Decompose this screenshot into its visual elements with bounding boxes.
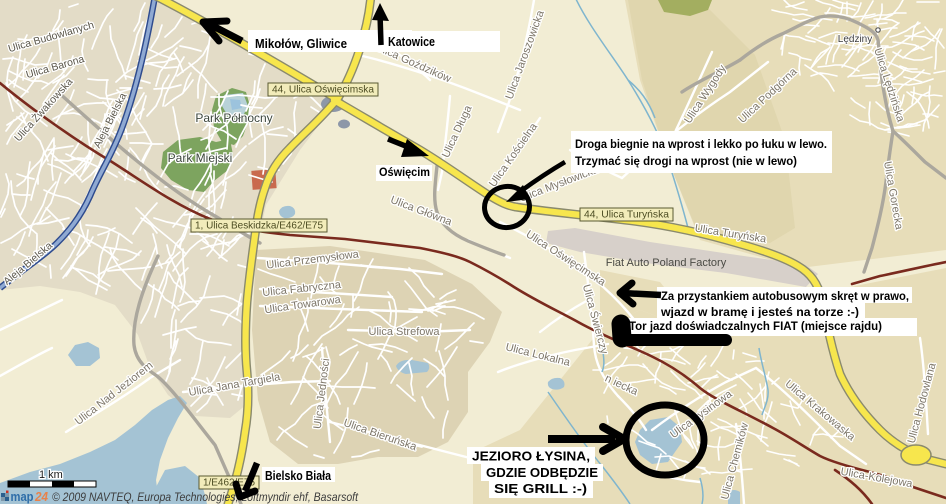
svg-text:Katowice: Katowice bbox=[388, 35, 435, 49]
svg-text:Tor jazd doświadczalnych FIAT: Tor jazd doświadczalnych FIAT (miejsce r… bbox=[629, 319, 882, 333]
svg-text:Droga biegnie na wprost i lekk: Droga biegnie na wprost i lekko po łuku … bbox=[575, 137, 827, 151]
svg-text:wjazd w bramę i jesteś na torz: wjazd w bramę i jesteś na torze :-) bbox=[660, 305, 859, 319]
svg-text:Mikołów, Gliwice: Mikołów, Gliwice bbox=[255, 37, 347, 51]
svg-text:Park Północny: Park Północny bbox=[195, 111, 272, 125]
svg-text:SIĘ GRILL :-): SIĘ GRILL :-) bbox=[494, 482, 587, 496]
svg-text:map: map bbox=[11, 490, 34, 504]
svg-text:1, Ulica Beskidzka/E462/E75: 1, Ulica Beskidzka/E462/E75 bbox=[195, 220, 323, 232]
svg-text:Lędziny: Lędziny bbox=[838, 34, 872, 45]
svg-text:24: 24 bbox=[34, 490, 48, 504]
svg-text:Za przystankiem autobusowym sk: Za przystankiem autobusowym skręt w praw… bbox=[661, 289, 909, 303]
svg-text:Fiat Auto Poland Factory: Fiat Auto Poland Factory bbox=[606, 257, 727, 269]
svg-text:Park Miejski: Park Miejski bbox=[168, 151, 233, 165]
svg-text:JEZIORO ŁYSINA,: JEZIORO ŁYSINA, bbox=[472, 450, 590, 464]
svg-text:GDZIE ODBĘDZIE: GDZIE ODBĘDZIE bbox=[486, 466, 598, 480]
svg-text:1 km: 1 km bbox=[39, 469, 63, 481]
svg-text:Trzymać się drogi na wprost (n: Trzymać się drogi na wprost (nie w lewo) bbox=[575, 154, 797, 168]
svg-text:44, Ulica Turyńska: 44, Ulica Turyńska bbox=[584, 209, 669, 221]
svg-text:44, Ulica Oświęcimska: 44, Ulica Oświęcimska bbox=[272, 84, 374, 96]
svg-text:Oświęcim: Oświęcim bbox=[379, 167, 430, 179]
svg-text:© 2009 NAVTEQ, Europa Technolo: © 2009 NAVTEQ, Europa Technologies, Loft… bbox=[52, 490, 359, 504]
svg-text:Bielsko Biała: Bielsko Biała bbox=[265, 469, 332, 483]
svg-text:Ulica Strefowa: Ulica Strefowa bbox=[369, 326, 441, 338]
